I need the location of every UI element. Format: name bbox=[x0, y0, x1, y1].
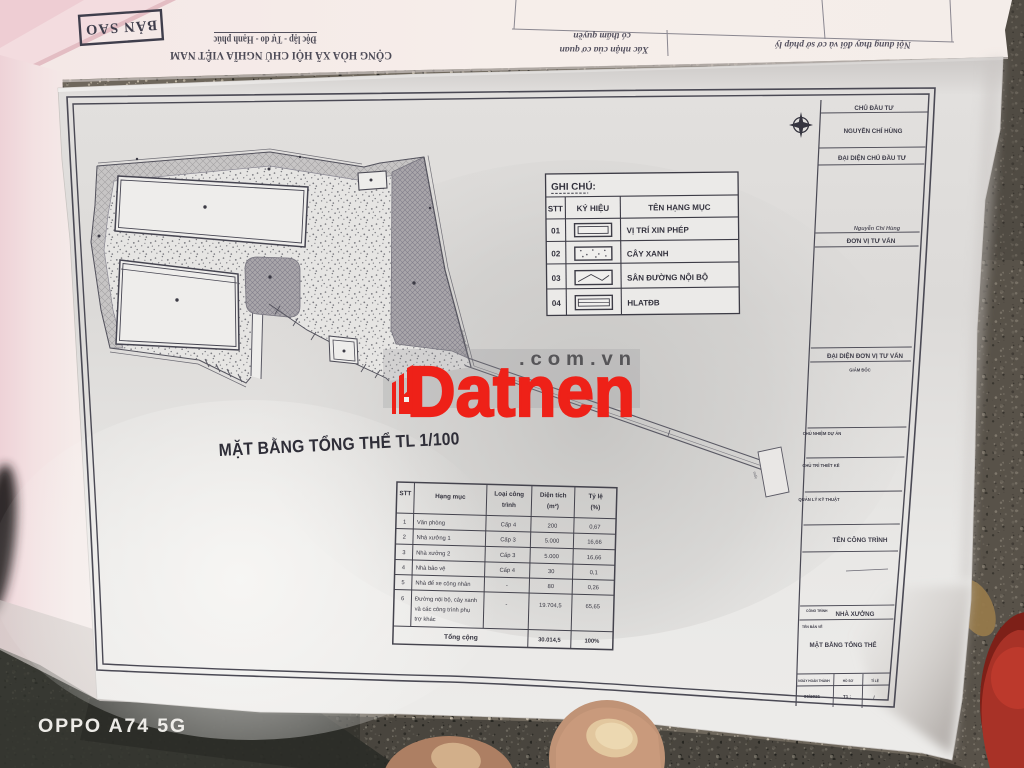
svg-text:100%: 100% bbox=[584, 638, 599, 644]
svg-text:Nhà xưởng 2: Nhà xưởng 2 bbox=[416, 550, 450, 558]
svg-text:Cấp 3: Cấp 3 bbox=[500, 553, 516, 559]
svg-text:Hạng mục: Hạng mục bbox=[435, 493, 466, 501]
svg-text:CỘNG HÒA XÃ HỘI CHỦ NGHĨA VIỆT: CỘNG HÒA XÃ HỘI CHỦ NGHĨA VIỆT NAM bbox=[170, 49, 392, 63]
svg-text:5: 5 bbox=[401, 580, 404, 586]
svg-text:ĐẠI DIỆN ĐƠN VỊ TƯ VẤN: ĐẠI DIỆN ĐƠN VỊ TƯ VẤN bbox=[827, 352, 904, 360]
svg-text:Nguyễn Chí Hùng: Nguyễn Chí Hùng bbox=[854, 225, 901, 232]
svg-text:Datnen: Datnen bbox=[407, 353, 635, 432]
svg-text:TÊN CÔNG TRÌNH: TÊN CÔNG TRÌNH bbox=[832, 535, 887, 544]
svg-text:2: 2 bbox=[403, 535, 406, 541]
svg-text:Tỷ lệ: Tỷ lệ bbox=[588, 493, 603, 500]
svg-text:30.014,5: 30.014,5 bbox=[538, 637, 561, 644]
svg-text:6: 6 bbox=[401, 596, 404, 602]
svg-text:Cấp 4: Cấp 4 bbox=[499, 568, 515, 574]
svg-text:Cấp 4: Cấp 4 bbox=[501, 522, 517, 528]
svg-text:OPPO A74 5G: OPPO A74 5G bbox=[38, 715, 187, 737]
svg-text:0,67: 0,67 bbox=[589, 525, 600, 531]
svg-text:03: 03 bbox=[552, 274, 562, 283]
svg-text:GIÁM ĐỐC: GIÁM ĐỐC bbox=[849, 368, 870, 373]
svg-text:NHÀ XƯỞNG: NHÀ XƯỞNG bbox=[836, 611, 875, 618]
svg-text:TỈ LỆ: TỈ LỆ bbox=[871, 678, 879, 683]
svg-text:NGUYỄN CHÍ HÙNG: NGUYỄN CHÍ HÙNG bbox=[844, 127, 903, 135]
svg-text:TÊN BẢN VẼ: TÊN BẢN VẼ bbox=[802, 624, 823, 629]
svg-text:-: - bbox=[505, 602, 507, 608]
svg-text:có thẩm quyền: có thẩm quyền bbox=[573, 30, 631, 41]
svg-text:01: 01 bbox=[551, 226, 561, 235]
svg-text:16,66: 16,66 bbox=[587, 555, 602, 561]
svg-text:5.000: 5.000 bbox=[544, 554, 559, 560]
svg-text:KÝ HIỆU: KÝ HIỆU bbox=[577, 204, 610, 213]
svg-text:-: - bbox=[506, 583, 508, 589]
svg-text:Nội dung thay đổi và cơ sở phá: Nội dung thay đổi và cơ sở pháp lý bbox=[774, 39, 912, 50]
svg-text:(%): (%) bbox=[590, 504, 600, 511]
svg-text:3: 3 bbox=[402, 550, 405, 556]
svg-text:04: 04 bbox=[552, 299, 562, 308]
svg-text:5.000: 5.000 bbox=[545, 538, 560, 544]
svg-text:QUẢN LÝ KỸ THUẬT: QUẢN LÝ KỸ THUẬT bbox=[798, 497, 840, 502]
svg-text:Nhà bảo vệ: Nhà bảo vệ bbox=[416, 566, 446, 573]
svg-text:TÊN HẠNG MỤC: TÊN HẠNG MỤC bbox=[648, 203, 711, 213]
svg-text:200: 200 bbox=[547, 523, 557, 529]
svg-text:65,65: 65,65 bbox=[585, 604, 600, 610]
svg-text:02: 02 bbox=[551, 249, 561, 258]
svg-text:1: 1 bbox=[403, 520, 406, 526]
svg-text:CÔNG TRÌNH: CÔNG TRÌNH bbox=[806, 608, 828, 613]
svg-text:16,66: 16,66 bbox=[587, 540, 602, 546]
svg-text:trợ khác: trợ khác bbox=[414, 617, 435, 624]
svg-text:CHỦ ĐẦU TƯ: CHỦ ĐẦU TƯ bbox=[854, 105, 894, 112]
svg-text:Nhà để xe công nhân: Nhà để xe công nhân bbox=[415, 580, 470, 588]
svg-text:HỒ SƠ: HỒ SƠ bbox=[843, 678, 854, 683]
svg-text:Xác nhận của cơ quan: Xác nhận của cơ quan bbox=[559, 44, 649, 54]
svg-text:NGÀY HOÀN THÀNH: NGÀY HOÀN THÀNH bbox=[798, 678, 830, 683]
svg-text:CÂY XANH: CÂY XANH bbox=[627, 249, 669, 258]
svg-text:Tổng cộng: Tổng cộng bbox=[444, 633, 478, 642]
svg-text:GHI CHÚ:: GHI CHÚ: bbox=[551, 180, 596, 192]
svg-text:Loại công: Loại công bbox=[494, 491, 524, 499]
svg-text:trình: trình bbox=[502, 502, 516, 509]
svg-text:CHỦ NHIỆM DỰ ÁN: CHỦ NHIỆM DỰ ÁN bbox=[803, 431, 842, 436]
svg-text:Diện tích: Diện tích bbox=[540, 492, 567, 500]
svg-text:19.704,5: 19.704,5 bbox=[539, 603, 562, 610]
svg-text:STT: STT bbox=[548, 204, 563, 213]
svg-text:MẶT BẰNG TỔNG THỂ: MẶT BẰNG TỔNG THỂ bbox=[809, 641, 876, 649]
svg-text:Cấp 3: Cấp 3 bbox=[500, 537, 516, 543]
svg-text:Độc lập - Tự do - Hạnh phúc: Độc lập - Tự do - Hạnh phúc bbox=[213, 34, 316, 45]
svg-text:ĐẠI DIỆN CHỦ ĐẦU TƯ: ĐẠI DIỆN CHỦ ĐẦU TƯ bbox=[838, 154, 907, 162]
svg-text:80: 80 bbox=[547, 584, 554, 590]
svg-text:T1 :: T1 : bbox=[843, 694, 852, 699]
svg-text:0,26: 0,26 bbox=[588, 585, 599, 591]
svg-text:STT: STT bbox=[399, 490, 411, 497]
svg-text:HLATĐB: HLATĐB bbox=[627, 298, 660, 307]
svg-text:Nhà xưởng 1: Nhà xưởng 1 bbox=[416, 534, 450, 542]
svg-text:CHỦ TRÌ THIẾT KẾ: CHỦ TRÌ THIẾT KẾ bbox=[802, 463, 839, 468]
svg-text:VỊ TRÍ XIN PHÉP: VỊ TRÍ XIN PHÉP bbox=[627, 225, 690, 235]
svg-text:0,1: 0,1 bbox=[590, 570, 598, 576]
svg-text:30: 30 bbox=[548, 569, 555, 575]
svg-text:Văn phòng: Văn phòng bbox=[417, 520, 445, 527]
svg-text:SÂN ĐƯỜNG NỘI BỘ: SÂN ĐƯỜNG NỘI BỘ bbox=[627, 273, 708, 283]
svg-text:(m²): (m²) bbox=[547, 503, 559, 510]
svg-text:06/2021: 06/2021 bbox=[804, 694, 821, 699]
